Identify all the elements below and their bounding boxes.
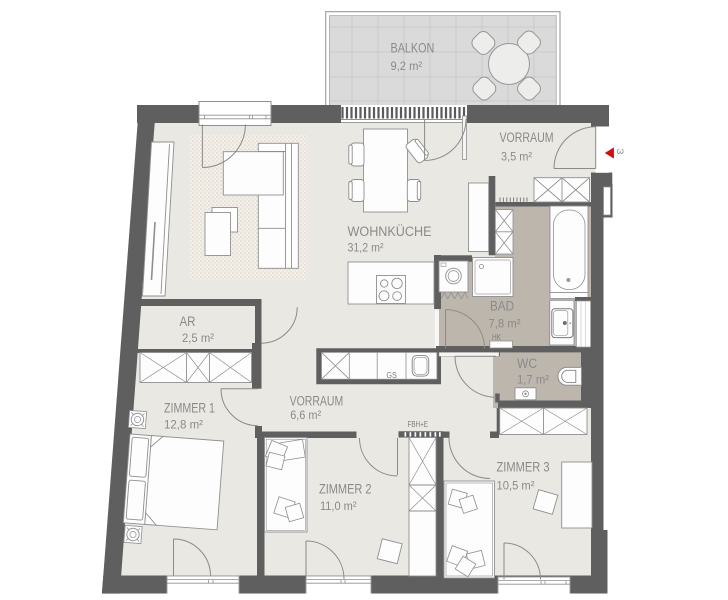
svg-text:9,2 m²: 9,2 m²	[391, 59, 423, 73]
svg-text:31,2 m²: 31,2 m²	[348, 241, 384, 255]
svg-text:ZIMMER 3: ZIMMER 3	[497, 460, 550, 476]
svg-text:11,0 m²: 11,0 m²	[320, 499, 357, 513]
svg-text:ZIMMER 1: ZIMMER 1	[164, 401, 215, 417]
svg-text:7,8 m²: 7,8 m²	[489, 317, 521, 331]
svg-text:3: 3	[615, 149, 625, 155]
svg-text:6,6 m²: 6,6 m²	[290, 408, 321, 422]
svg-text:WOHNKÜCHE: WOHNKÜCHE	[348, 222, 432, 240]
svg-text:BAD: BAD	[490, 299, 514, 315]
svg-text:ZIMMER 2: ZIMMER 2	[319, 482, 372, 498]
svg-text:BALKON: BALKON	[391, 41, 435, 57]
svg-text:WC: WC	[517, 356, 537, 372]
svg-text:12,8 m²: 12,8 m²	[164, 417, 203, 431]
svg-text:AR: AR	[180, 314, 196, 330]
svg-text:VORRAUM: VORRAUM	[290, 394, 344, 410]
svg-text:GS: GS	[386, 371, 397, 380]
svg-text:10,5 m²: 10,5 m²	[497, 479, 535, 493]
svg-text:3,5 m²: 3,5 m²	[501, 150, 532, 164]
svg-text:VORRAUM: VORRAUM	[500, 130, 554, 146]
svg-text:FBH+E: FBH+E	[408, 420, 429, 429]
svg-text:1,7 m²: 1,7 m²	[517, 373, 549, 387]
svg-text:2,5 m²: 2,5 m²	[182, 331, 214, 345]
svg-text:HK: HK	[492, 333, 502, 342]
